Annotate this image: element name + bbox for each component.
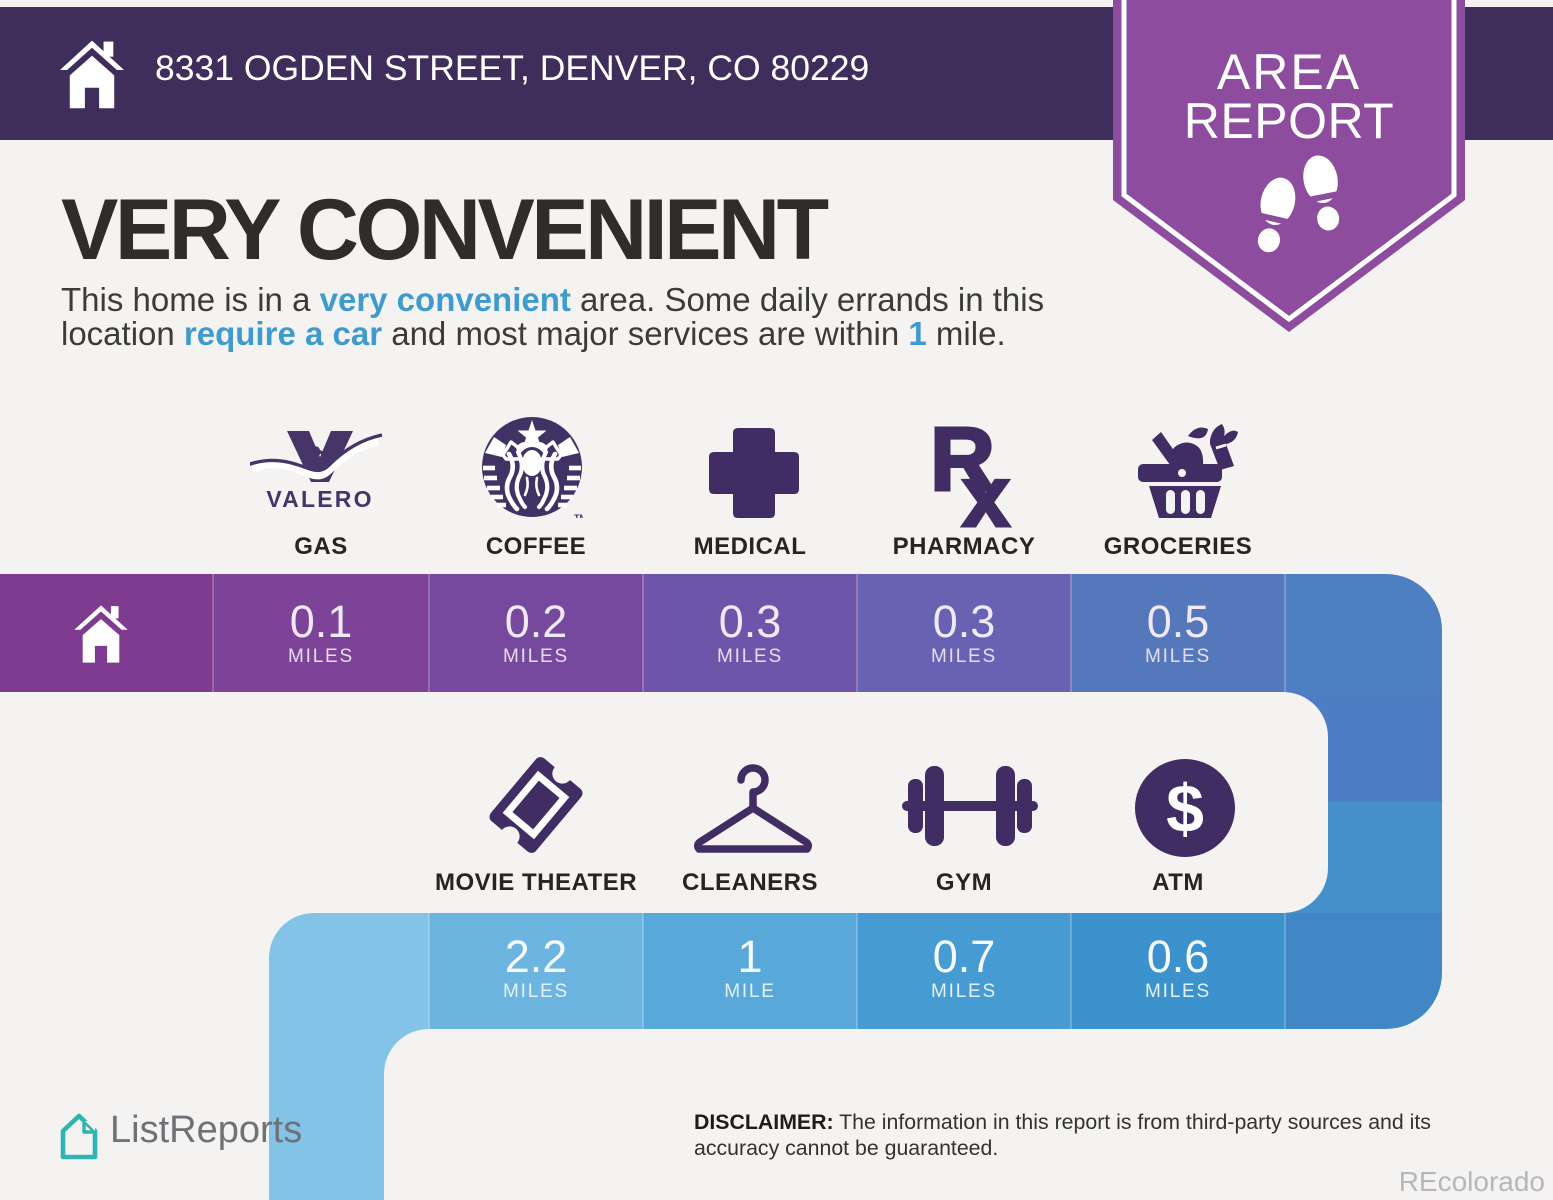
svg-text:$: $	[1166, 771, 1204, 847]
svg-text:TM: TM	[574, 513, 583, 518]
svg-text:x: x	[962, 449, 1010, 528]
svg-text:VALERO: VALERO	[266, 486, 373, 512]
